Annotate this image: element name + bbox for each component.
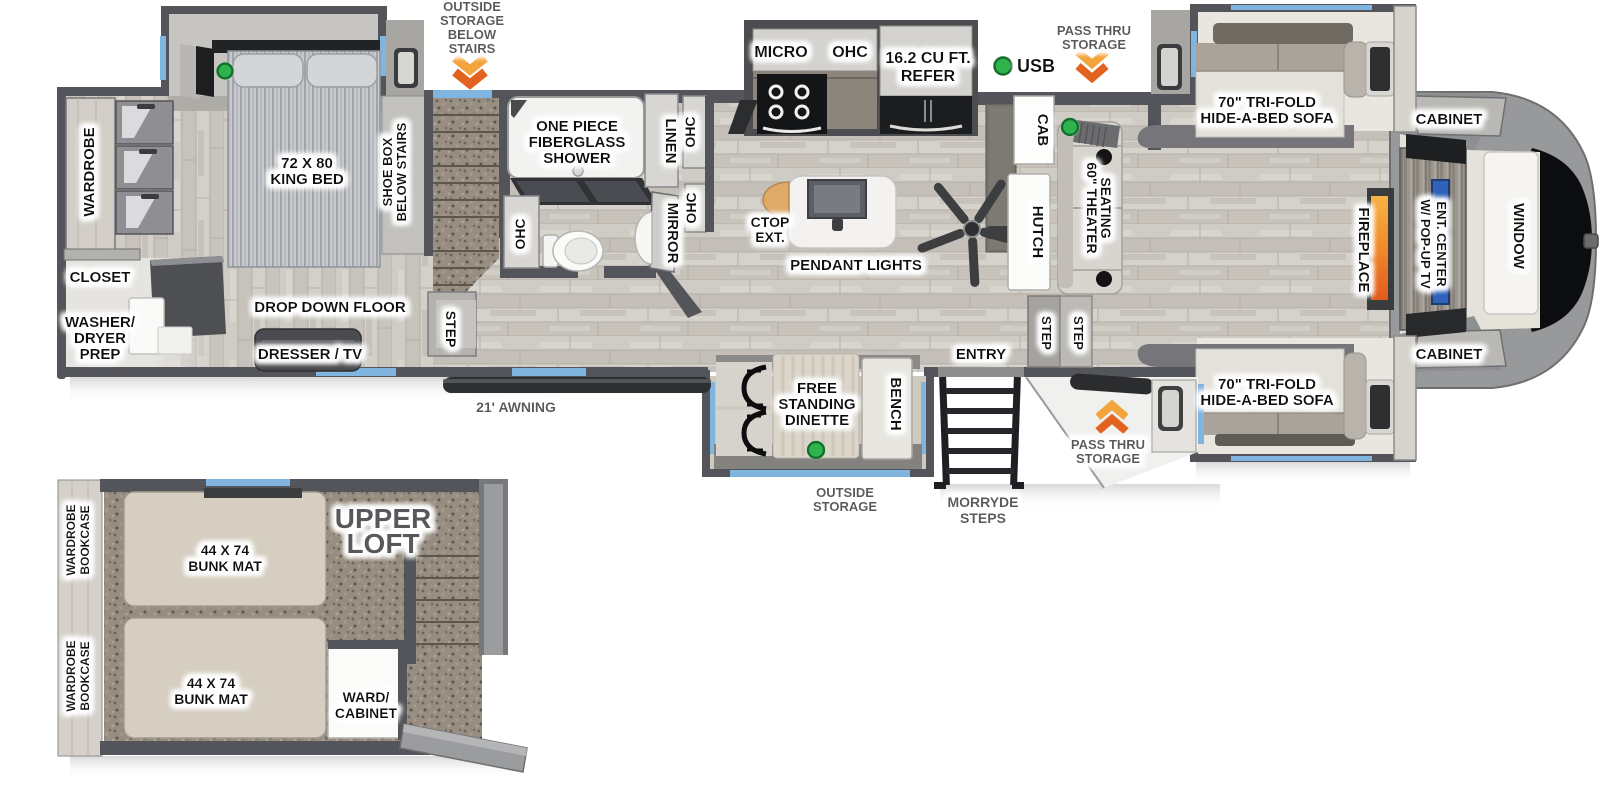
svg-text:EXT.: EXT.: [755, 229, 785, 245]
svg-text:OUTSIDE: OUTSIDE: [443, 0, 501, 14]
svg-text:OHC: OHC: [832, 44, 868, 61]
svg-text:REFER: REFER: [901, 68, 956, 85]
svg-text:HUTCH: HUTCH: [1029, 206, 1046, 259]
svg-text:W/ POP-UP TV: W/ POP-UP TV: [1418, 199, 1433, 289]
svg-text:CLOSET: CLOSET: [70, 269, 131, 286]
svg-text:60" THEATER: 60" THEATER: [1084, 162, 1100, 253]
svg-text:PASS THRU: PASS THRU: [1057, 23, 1131, 38]
svg-text:70" TRI-FOLD: 70" TRI-FOLD: [1218, 94, 1316, 111]
svg-text:CABINET: CABINET: [1416, 111, 1483, 128]
svg-text:MIRROR: MIRROR: [664, 203, 681, 264]
svg-text:44 X 74: 44 X 74: [187, 675, 235, 691]
svg-text:21' AWNING: 21' AWNING: [476, 399, 556, 415]
svg-text:FIREPLACE: FIREPLACE: [1355, 207, 1372, 292]
svg-text:STORAGE: STORAGE: [1076, 451, 1140, 466]
svg-text:WINDOW: WINDOW: [1510, 203, 1527, 270]
svg-text:CABINET: CABINET: [1416, 346, 1483, 363]
svg-text:70" TRI-FOLD: 70" TRI-FOLD: [1218, 376, 1316, 393]
svg-text:LOFT: LOFT: [346, 528, 419, 559]
svg-text:BELOW: BELOW: [448, 27, 497, 42]
svg-text:STORAGE: STORAGE: [1062, 37, 1126, 52]
svg-text:SEATING: SEATING: [1098, 177, 1114, 238]
svg-text:DRESSER / TV: DRESSER / TV: [258, 346, 362, 363]
svg-text:STORAGE: STORAGE: [813, 499, 877, 514]
svg-text:WARDROBE: WARDROBE: [81, 127, 98, 216]
svg-text:BOOKCASE: BOOKCASE: [78, 641, 92, 710]
svg-text:STEP: STEP: [1039, 316, 1054, 350]
svg-text:WARDROBE: WARDROBE: [64, 640, 78, 711]
svg-text:CABINET: CABINET: [335, 705, 398, 721]
svg-text:DRYER: DRYER: [74, 330, 126, 347]
svg-text:16.2 CU FT.: 16.2 CU FT.: [885, 50, 970, 67]
svg-text:STAIRS: STAIRS: [449, 41, 496, 56]
svg-text:SHOWER: SHOWER: [543, 150, 611, 167]
svg-text:USB: USB: [1017, 56, 1055, 76]
svg-text:FIBERGLASS: FIBERGLASS: [529, 134, 626, 151]
svg-text:STANDING: STANDING: [778, 396, 855, 413]
svg-text:PENDANT LIGHTS: PENDANT LIGHTS: [790, 257, 922, 274]
svg-text:SHOE BOX: SHOE BOX: [380, 137, 395, 206]
svg-text:STORAGE: STORAGE: [440, 13, 504, 28]
svg-text:PREP: PREP: [80, 346, 121, 363]
svg-text:OHC: OHC: [682, 116, 698, 147]
svg-text:BUNK MAT: BUNK MAT: [174, 691, 248, 707]
svg-text:WARD/: WARD/: [343, 689, 390, 705]
svg-text:CTOP: CTOP: [751, 214, 790, 230]
svg-text:DINETTE: DINETTE: [785, 412, 849, 429]
svg-text:72 X 80: 72 X 80: [281, 155, 333, 172]
svg-text:HIDE-A-BED SOFA: HIDE-A-BED SOFA: [1200, 392, 1334, 409]
svg-text:BUNK MAT: BUNK MAT: [188, 558, 262, 574]
svg-text:WARDROBE: WARDROBE: [64, 504, 78, 575]
svg-text:ONE PIECE: ONE PIECE: [536, 118, 618, 135]
svg-text:STEPS: STEPS: [960, 510, 1006, 526]
svg-text:44 X 74: 44 X 74: [201, 542, 249, 558]
svg-text:OHC: OHC: [683, 192, 699, 223]
svg-text:STEP: STEP: [443, 311, 459, 348]
svg-text:BOOKCASE: BOOKCASE: [78, 505, 92, 574]
svg-text:ENTRY: ENTRY: [956, 346, 1006, 363]
svg-text:FREE: FREE: [797, 380, 837, 397]
svg-text:LINEN: LINEN: [662, 119, 679, 164]
svg-text:ENT. CENTER: ENT. CENTER: [1434, 201, 1449, 287]
svg-text:HIDE-A-BED SOFA: HIDE-A-BED SOFA: [1200, 110, 1334, 127]
svg-text:OHC: OHC: [512, 218, 528, 249]
svg-text:WASHER/: WASHER/: [65, 314, 136, 331]
svg-text:BENCH: BENCH: [887, 377, 904, 430]
svg-text:CAB: CAB: [1034, 114, 1051, 147]
svg-text:MICRO: MICRO: [754, 44, 807, 61]
svg-text:KING BED: KING BED: [270, 171, 344, 188]
svg-text:BELOW STAIRS: BELOW STAIRS: [394, 122, 409, 221]
svg-text:DROP DOWN FLOOR: DROP DOWN FLOOR: [254, 299, 406, 316]
svg-text:PASS THRU: PASS THRU: [1071, 437, 1145, 452]
svg-text:OUTSIDE: OUTSIDE: [816, 485, 874, 500]
svg-text:STEP: STEP: [1071, 316, 1086, 350]
svg-text:MORRYDE: MORRYDE: [947, 494, 1018, 510]
